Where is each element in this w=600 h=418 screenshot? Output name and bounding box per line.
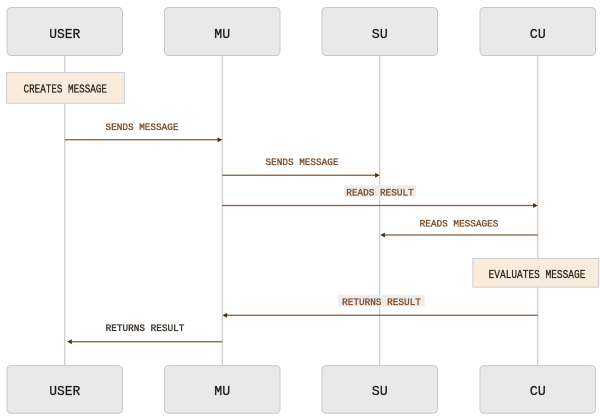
- svg-text:RETURNS RESULT: RETURNS RESULT: [106, 324, 185, 335]
- svg-text:EVALUATES MESSAGE: EVALUATES MESSAGE: [489, 268, 586, 282]
- svg-text:RETURNS RESULT: RETURNS RESULT: [342, 298, 421, 309]
- svg-text:SENDS MESSAGE: SENDS MESSAGE: [266, 158, 339, 169]
- svg-text:USER: USER: [49, 385, 80, 400]
- svg-text:CU: CU: [530, 385, 546, 400]
- svg-text:CREATES MESSAGE: CREATES MESSAGE: [24, 82, 108, 96]
- svg-text:SENDS MESSAGE: SENDS MESSAGE: [106, 123, 179, 134]
- svg-text:MU: MU: [214, 385, 230, 400]
- svg-text:MU: MU: [214, 28, 230, 43]
- svg-text:READS RESULT: READS RESULT: [346, 188, 414, 199]
- svg-text:USER: USER: [49, 28, 80, 43]
- svg-text:SU: SU: [372, 28, 388, 43]
- svg-text:READS MESSAGES: READS MESSAGES: [420, 219, 499, 230]
- svg-text:SU: SU: [372, 385, 388, 400]
- svg-text:CU: CU: [530, 28, 546, 43]
